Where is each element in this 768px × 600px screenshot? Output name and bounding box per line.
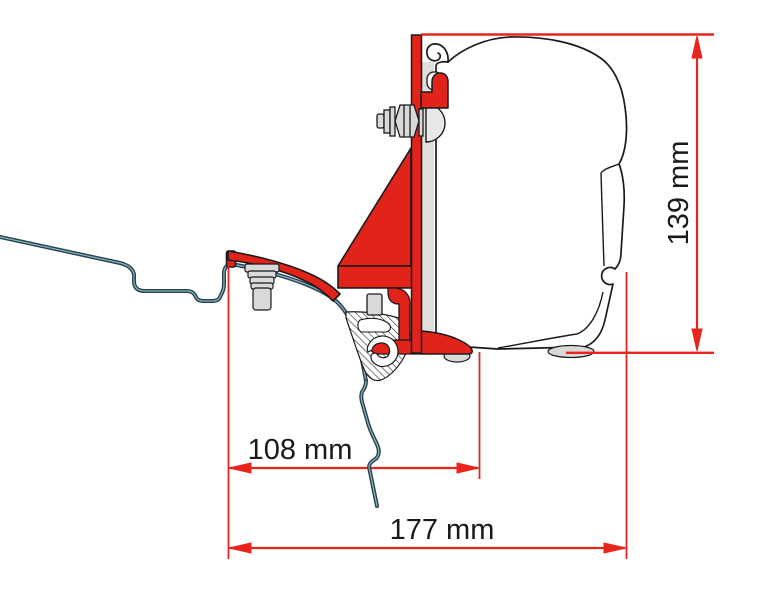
awning-rail-hook-curl: [427, 44, 448, 62]
mounting-bolt: [377, 105, 423, 137]
diagram-canvas: 108 mm 177 mm 139 mm: [0, 0, 768, 600]
van-roof-profile-lower: [361, 381, 379, 506]
arrowhead-right: [604, 543, 626, 553]
dimension-label-108: 108 mm: [248, 434, 353, 466]
square-nut: [367, 294, 382, 315]
awning-bottom-pad: [548, 346, 594, 358]
van-roof-profile-line: [0, 237, 366, 381]
arrowhead-up: [692, 36, 702, 58]
dimension-label-139: 139 mm: [663, 141, 695, 246]
arrowhead-down: [692, 329, 702, 351]
dimension-label-177: 177 mm: [390, 514, 495, 546]
bracket-vertical-plate: [412, 35, 422, 353]
arrowhead-left: [229, 543, 251, 553]
awning-case-outline: [427, 37, 627, 349]
arrowhead-right: [457, 463, 479, 473]
bracket-base-plate: [338, 266, 412, 288]
threaded-stud: [245, 264, 279, 310]
bracket-gusset: [338, 148, 411, 266]
awning-adapter-technical-diagram: 108 mm 177 mm 139 mm: [0, 0, 768, 600]
awning-case-body: [436, 37, 627, 349]
